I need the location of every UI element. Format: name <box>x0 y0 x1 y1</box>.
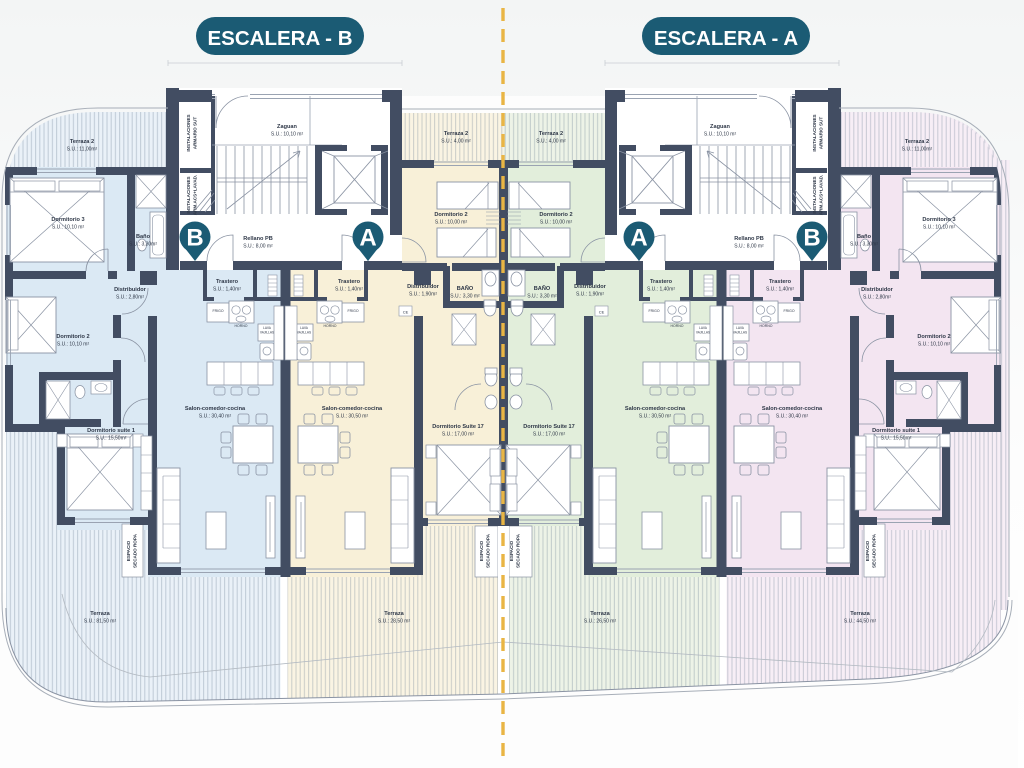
svg-text:FRIGO: FRIGO <box>347 309 358 313</box>
svg-text:Baño: Baño <box>857 234 872 240</box>
svg-text:S.U.: 30,40 m²: S.U.: 30,40 m² <box>199 414 232 420</box>
svg-text:S.U.: 10,00 m²: S.U.: 10,00 m² <box>435 220 468 226</box>
svg-text:S.U.: 1,40m²: S.U.: 1,40m² <box>647 287 675 293</box>
svg-text:BAÑO: BAÑO <box>534 285 551 292</box>
svg-text:A: A <box>630 225 647 252</box>
svg-text:S.U.: 10,10 m²: S.U.: 10,10 m² <box>923 225 956 231</box>
svg-text:Distribuidor: Distribuidor <box>574 284 607 290</box>
svg-text:S.U.: 3,30 m²: S.U.: 3,30 m² <box>527 294 557 300</box>
svg-text:S.U.: 1,40m²: S.U.: 1,40m² <box>335 287 363 293</box>
svg-text:LAVA: LAVA <box>736 326 745 330</box>
svg-text:S.U.: 30,50 m²: S.U.: 30,50 m² <box>639 414 672 420</box>
svg-text:S.U.: 1,40m²: S.U.: 1,40m² <box>213 287 241 293</box>
svg-text:ARMARIO SUT: ARMARIO SUT <box>819 117 824 150</box>
svg-text:LAVA: LAVA <box>263 326 272 330</box>
svg-text:S.U.: 81,50 m²: S.U.: 81,50 m² <box>84 619 117 625</box>
svg-text:Baño: Baño <box>136 234 151 240</box>
svg-text:S.U.: 3,30m²: S.U.: 3,30m² <box>850 242 878 248</box>
svg-text:SECADO ROPA: SECADO ROPA <box>486 533 491 568</box>
svg-text:LAVA: LAVA <box>699 326 708 330</box>
svg-text:Salon-comedor-cocina: Salon-comedor-cocina <box>185 406 246 412</box>
svg-text:ESPACIO: ESPACIO <box>126 540 131 561</box>
svg-text:S.U.: 10,10 m²: S.U.: 10,10 m² <box>271 132 304 138</box>
svg-text:Trastero: Trastero <box>769 279 792 285</box>
svg-text:Dormitorio 2: Dormitorio 2 <box>56 334 89 340</box>
svg-text:SECADO ROPA: SECADO ROPA <box>516 533 521 568</box>
svg-text:ESCALERA - B: ESCALERA - B <box>207 27 352 50</box>
svg-text:ARMARIO SUT: ARMARIO SUT <box>193 117 198 150</box>
svg-text:S.U.: 11,00m²: S.U.: 11,00m² <box>902 147 933 153</box>
svg-text:S.U.: 10,10 m²: S.U.: 10,10 m² <box>704 132 737 138</box>
svg-text:ESPACIO: ESPACIO <box>865 540 870 561</box>
svg-text:B: B <box>186 225 203 252</box>
svg-text:S.U.: 44,50 m²: S.U.: 44,50 m² <box>844 619 877 625</box>
svg-text:S.U.: 10,10 m²: S.U.: 10,10 m² <box>918 342 951 348</box>
svg-text:S.U.: 17,00 m²: S.U.: 17,00 m² <box>533 432 566 438</box>
svg-text:ESPACIO: ESPACIO <box>479 540 484 561</box>
svg-text:S.U.: 11,00m²: S.U.: 11,00m² <box>67 147 98 153</box>
svg-text:S.U.: 15,50m²: S.U.: 15,50m² <box>881 436 912 442</box>
svg-text:S.U.: 4,00 m²: S.U.: 4,00 m² <box>441 139 471 145</box>
svg-text:Salon-comedor-cocina: Salon-comedor-cocina <box>762 406 823 412</box>
svg-text:ARM.ACS+LAVAD.: ARM.ACS+LAVAD. <box>819 175 824 216</box>
svg-text:Dormitorio Suite 17: Dormitorio Suite 17 <box>523 424 575 430</box>
svg-text:Terraza: Terraza <box>850 611 870 617</box>
svg-text:Terraza 2: Terraza 2 <box>70 139 94 145</box>
svg-text:S.U.: 28,50 m²: S.U.: 28,50 m² <box>378 619 411 625</box>
svg-text:S.U.: 3,30m²: S.U.: 3,30m² <box>129 242 157 248</box>
svg-text:Terraza: Terraza <box>384 611 404 617</box>
svg-text:S.U.: 1,90m²: S.U.: 1,90m² <box>409 292 437 298</box>
svg-text:S.U.: 8,00 m²: S.U.: 8,00 m² <box>243 244 273 250</box>
svg-text:VAJILLAS: VAJILLAS <box>733 331 747 335</box>
svg-text:Rellano PB: Rellano PB <box>734 236 764 242</box>
svg-text:ESCALERA - A: ESCALERA - A <box>654 27 798 50</box>
svg-text:Dormitorio suite 1: Dormitorio suite 1 <box>872 428 920 434</box>
svg-text:S.U.: 10,00 m²: S.U.: 10,00 m² <box>540 220 573 226</box>
svg-text:Dormitorio 2: Dormitorio 2 <box>434 212 467 218</box>
svg-text:S.U.: 2,80m²: S.U.: 2,80m² <box>863 295 891 301</box>
svg-text:Trastero: Trastero <box>338 279 361 285</box>
svg-text:S.U.: 10,10 m²: S.U.: 10,10 m² <box>52 225 85 231</box>
svg-text:INSTALACIONES: INSTALACIONES <box>186 176 191 213</box>
svg-text:INSTALACIONES: INSTALACIONES <box>812 114 817 151</box>
svg-text:Salon-comedor-cocina: Salon-comedor-cocina <box>625 406 686 412</box>
svg-text:Zaguan: Zaguan <box>277 124 297 130</box>
svg-text:BAÑO: BAÑO <box>457 285 474 292</box>
svg-text:Distribuidor: Distribuidor <box>407 284 440 290</box>
svg-text:INSTALACIONES: INSTALACIONES <box>186 114 191 151</box>
svg-text:HORNO: HORNO <box>759 324 772 328</box>
svg-text:Dormitorio suite 1: Dormitorio suite 1 <box>87 428 135 434</box>
svg-text:LAVA: LAVA <box>300 326 309 330</box>
svg-text:Terraza: Terraza <box>590 611 610 617</box>
svg-text:S.U.: 8,00 m²: S.U.: 8,00 m² <box>734 244 764 250</box>
svg-text:SECADO ROPA: SECADO ROPA <box>133 533 138 568</box>
svg-text:INSTALACIONES: INSTALACIONES <box>812 176 817 213</box>
svg-text:Dormitorio 2: Dormitorio 2 <box>539 212 572 218</box>
svg-text:Dormitorio Suite 17: Dormitorio Suite 17 <box>432 424 484 430</box>
svg-text:Zaguan: Zaguan <box>710 124 730 130</box>
svg-text:S.U.: 2,80m²: S.U.: 2,80m² <box>116 295 144 301</box>
svg-text:S.U.: 10,10 m²: S.U.: 10,10 m² <box>57 342 90 348</box>
svg-text:VAJILLAS: VAJILLAS <box>297 331 311 335</box>
svg-text:S.U.: 1,40m²: S.U.: 1,40m² <box>766 287 794 293</box>
svg-text:A: A <box>359 225 376 252</box>
svg-text:SECADO ROPA: SECADO ROPA <box>872 533 877 568</box>
svg-text:S.U.: 30,40 m²: S.U.: 30,40 m² <box>776 414 809 420</box>
svg-text:Dormitorio 3: Dormitorio 3 <box>51 217 84 223</box>
svg-text:Salon-comedor-cocina: Salon-comedor-cocina <box>322 406 383 412</box>
svg-text:VAJILLAS: VAJILLAS <box>696 331 710 335</box>
svg-text:Rellano PB: Rellano PB <box>243 236 273 242</box>
svg-text:HORNO: HORNO <box>234 324 247 328</box>
svg-text:Dormitorio 2: Dormitorio 2 <box>917 334 950 340</box>
svg-text:B: B <box>803 225 820 252</box>
svg-text:ESPACIO: ESPACIO <box>509 540 514 561</box>
svg-text:FRIGO: FRIGO <box>648 309 659 313</box>
svg-text:S.U.: 17,00 m²: S.U.: 17,00 m² <box>442 432 475 438</box>
svg-text:Distribuidor: Distribuidor <box>861 287 894 293</box>
svg-text:Terraza 2: Terraza 2 <box>539 131 563 137</box>
svg-text:VAJILLAS: VAJILLAS <box>260 331 274 335</box>
svg-text:CE: CE <box>403 310 409 315</box>
svg-text:Trastero: Trastero <box>216 279 239 285</box>
svg-text:HORNO: HORNO <box>670 324 683 328</box>
svg-text:ARM.ACS+LAVAD.: ARM.ACS+LAVAD. <box>193 175 198 216</box>
svg-text:Distribuidor: Distribuidor <box>114 287 147 293</box>
svg-text:Trastero: Trastero <box>650 279 673 285</box>
svg-text:S.U.: 26,50 m²: S.U.: 26,50 m² <box>584 619 617 625</box>
svg-text:FRIGO: FRIGO <box>783 309 794 313</box>
svg-text:Terraza: Terraza <box>90 611 110 617</box>
svg-text:S.U.: 3,30 m²: S.U.: 3,30 m² <box>450 294 480 300</box>
svg-text:FRIGO: FRIGO <box>212 309 223 313</box>
svg-text:S.U.: 1,90m²: S.U.: 1,90m² <box>576 292 604 298</box>
svg-text:S.U.: 4,00 m²: S.U.: 4,00 m² <box>536 139 566 145</box>
svg-text:Dormitorio 3: Dormitorio 3 <box>922 217 955 223</box>
svg-text:Terraza 2: Terraza 2 <box>905 139 929 145</box>
svg-text:S.U.: 30,50 m²: S.U.: 30,50 m² <box>336 414 369 420</box>
svg-text:S.U.: 15,50m²: S.U.: 15,50m² <box>96 436 127 442</box>
svg-text:CE: CE <box>599 310 605 315</box>
svg-text:HORNO: HORNO <box>323 324 336 328</box>
svg-text:Terraza 2: Terraza 2 <box>444 131 468 137</box>
